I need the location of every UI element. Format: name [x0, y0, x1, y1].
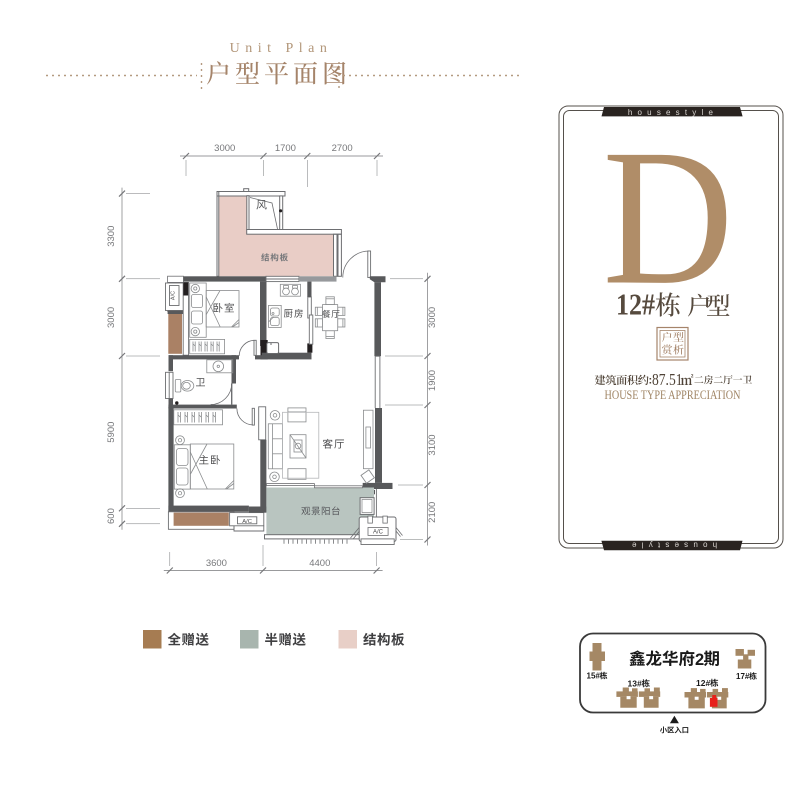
svg-text:HOUSE TYPE APPRECIATION: HOUSE TYPE APPRECIATION	[605, 388, 741, 402]
svg-text:A/C: A/C	[373, 530, 384, 536]
svg-text:87.51: 87.51	[652, 370, 683, 389]
svg-text:3600: 3600	[206, 558, 227, 569]
svg-text:3000: 3000	[427, 307, 438, 328]
svg-text:3000: 3000	[106, 307, 117, 328]
svg-text:15#: 15#	[587, 672, 601, 681]
svg-text:13#: 13#	[628, 679, 642, 689]
svg-text:2700: 2700	[332, 143, 353, 154]
svg-text:A/C: A/C	[242, 519, 252, 525]
svg-text:12#: 12#	[696, 678, 710, 688]
svg-text:3000: 3000	[214, 143, 235, 154]
svg-text:3300: 3300	[106, 226, 117, 247]
svg-text:1900: 1900	[427, 370, 438, 391]
svg-text:17#: 17#	[736, 672, 750, 681]
svg-text:12#: 12#	[616, 287, 655, 322]
svg-text:2100: 2100	[427, 502, 438, 523]
svg-text:5900: 5900	[106, 422, 117, 443]
svg-text:A/C: A/C	[171, 291, 177, 300]
svg-text:2: 2	[695, 651, 704, 669]
svg-text:4400: 4400	[309, 558, 330, 569]
svg-text:housestyle: housestyle	[627, 541, 717, 550]
svg-text:3100: 3100	[427, 434, 438, 455]
svg-text:600: 600	[106, 508, 117, 524]
svg-text:1700: 1700	[275, 143, 296, 154]
svg-text:Unit Plan: Unit Plan	[230, 41, 333, 56]
